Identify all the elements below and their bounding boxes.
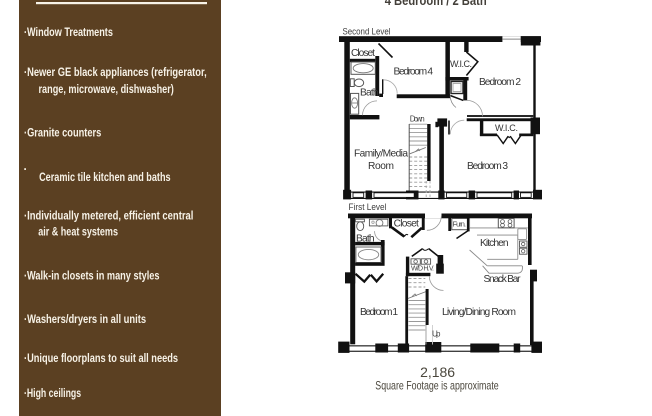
svg-text:Bedroom 3: Bedroom 3 [467, 161, 508, 172]
svg-text:·Granite counters: ·Granite counters [24, 127, 101, 140]
svg-text:·Walk-in closets in many style: ·Walk-in closets in many styles [24, 269, 160, 282]
svg-text:Living/Dining Room: Living/Dining Room [442, 307, 516, 318]
svg-text:·Window Treatments: ·Window Treatments [24, 27, 113, 39]
svg-text:Bath: Bath [356, 234, 375, 245]
svg-text:4 Bedroom / 2 Bath: 4 Bedroom / 2 Bath [385, 0, 487, 8]
svg-text:range, microwave, dishwasher): range, microwave, dishwasher) [39, 84, 174, 96]
svg-text:Up: Up [432, 329, 441, 338]
svg-text:Room: Room [368, 161, 394, 172]
svg-text:Snack Bar: Snack Bar [484, 274, 522, 285]
svg-text:Bedroom 1: Bedroom 1 [360, 307, 398, 318]
svg-text:Closet: Closet [351, 48, 375, 59]
svg-text:Second Level: Second Level [343, 27, 391, 37]
svg-text:·Washers/dryers in all units: ·Washers/dryers in all units [24, 313, 146, 326]
svg-text:·Individually metered, efficie: ·Individually metered, efficient central [24, 210, 193, 223]
svg-text:·High ceilings: ·High ceilings [24, 388, 81, 400]
svg-text:Bath: Bath [360, 88, 379, 99]
svg-text:Bedroom 2: Bedroom 2 [479, 77, 521, 88]
svg-text:·Newer GE black appliances (re: ·Newer GE black appliances (refrigerator… [24, 66, 207, 79]
svg-text:W.I.C.: W.I.C. [450, 59, 472, 69]
svg-text:Down: Down [410, 115, 425, 124]
svg-text:air & heat systems: air & heat systems [38, 227, 118, 239]
svg-text:·: · [24, 163, 28, 176]
svg-text:Kitchen: Kitchen [480, 238, 509, 249]
svg-text:W.I.C.: W.I.C. [495, 123, 518, 133]
svg-text:Furn.: Furn. [453, 219, 467, 228]
svg-text:Ceramic tile kitchen and baths: Ceramic tile kitchen and baths [39, 172, 171, 184]
svg-text:First Level: First Level [349, 202, 387, 212]
svg-text:Bedroom 4: Bedroom 4 [394, 67, 434, 78]
svg-text:·Unique floorplans to suit all: ·Unique floorplans to suit all needs [24, 352, 178, 365]
svg-text:Family/Media: Family/Media [354, 149, 408, 160]
svg-text:Square Footage is approximate: Square Footage is approximate [375, 379, 499, 393]
svg-text:W/D H.V.: W/D H.V. [411, 265, 434, 272]
svg-text:Closet: Closet [394, 219, 419, 230]
